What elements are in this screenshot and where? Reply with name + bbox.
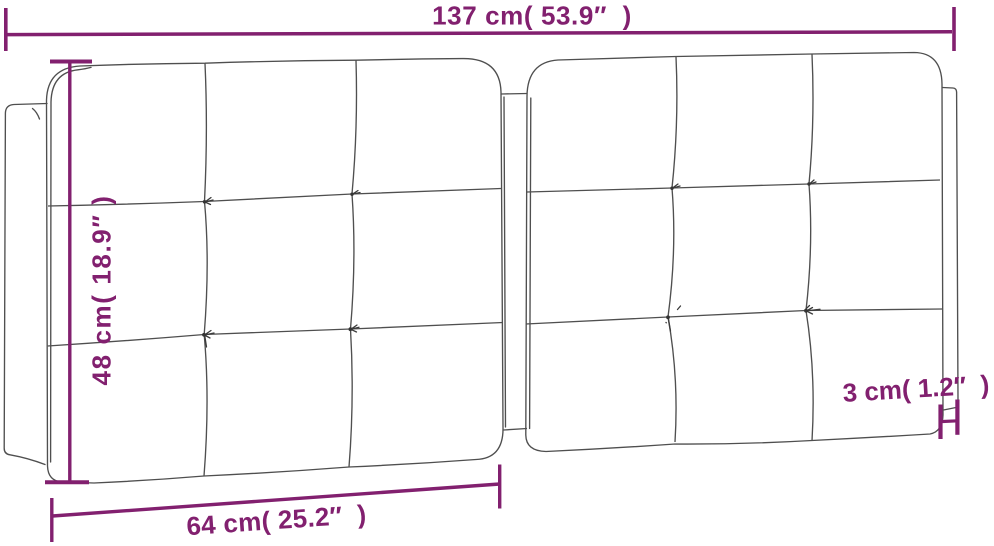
svg-text:48 cm( 18.9″ ): 48 cm( 18.9″ ) <box>87 195 117 386</box>
svg-text:137 cm( 53.9″ ): 137 cm( 53.9″ ) <box>432 1 632 31</box>
